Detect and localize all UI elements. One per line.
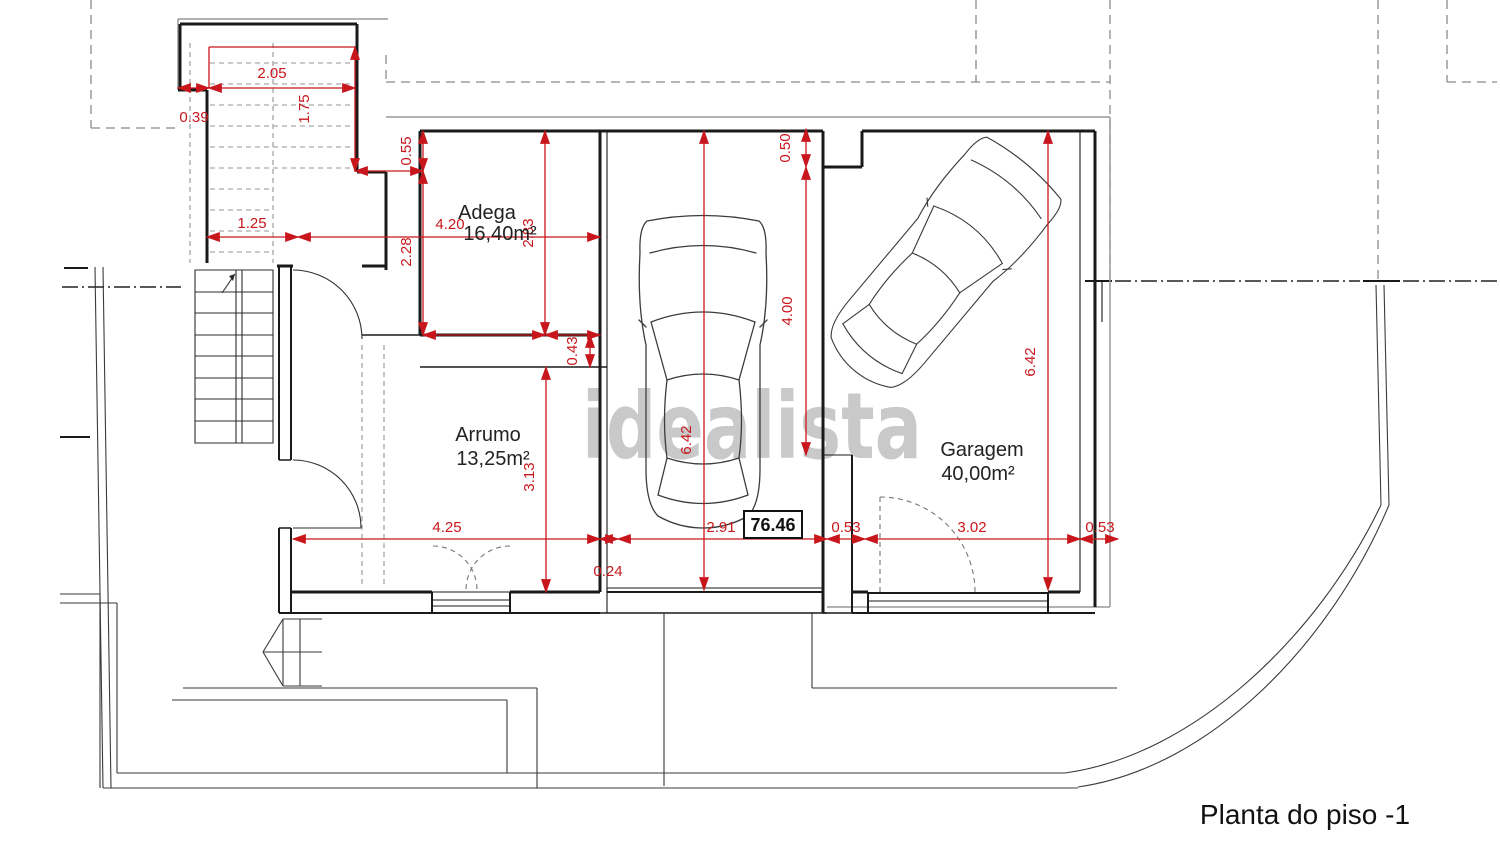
dim-label-024: 0.24 xyxy=(593,563,622,580)
room-label-adega-area: 16,40m² xyxy=(463,223,537,245)
dim-label-642-garage: 6.42 xyxy=(1022,347,1039,376)
dim-label-205: 2.05 xyxy=(257,65,286,82)
room-label-arrumo-name: Arrumo xyxy=(455,424,521,446)
room-label-garagem-area: 40,00m² xyxy=(941,463,1015,485)
dim-label-039: 0.39 xyxy=(179,109,208,126)
dim-label-228: 2.28 xyxy=(398,237,415,266)
dim-label-053-right: 0.53 xyxy=(1085,519,1114,536)
room-label-arrumo-area: 13,25m² xyxy=(456,448,530,470)
room-label-garagem-name: Garagem xyxy=(940,439,1023,461)
dim-label-043: 0.43 xyxy=(564,336,581,365)
level-marker: 76.46 xyxy=(744,511,802,538)
dim-label-400: 4.00 xyxy=(779,296,796,325)
level-marker-value: 76.46 xyxy=(750,515,795,535)
dim-label-302: 3.02 xyxy=(957,519,986,536)
watermark-logo: idealista xyxy=(582,373,922,480)
plan-title: Planta do piso -1 xyxy=(1200,799,1410,830)
dim-label-642-bay: 6.42 xyxy=(678,425,695,454)
floor-plan-page: idealista xyxy=(0,0,1500,844)
dim-label-055: 0.55 xyxy=(398,136,415,165)
dim-label-050: 0.50 xyxy=(777,133,794,162)
dim-label-125: 1.25 xyxy=(237,215,266,232)
floor-plan-drawing: idealista xyxy=(0,0,1500,844)
dim-label-175: 1.75 xyxy=(296,94,313,123)
dim-label-291: 2.91 xyxy=(706,519,735,536)
room-label-adega-name: Adega xyxy=(458,202,517,224)
dim-label-425: 4.25 xyxy=(432,519,461,536)
dim-label-053-left: 0.53 xyxy=(831,519,860,536)
